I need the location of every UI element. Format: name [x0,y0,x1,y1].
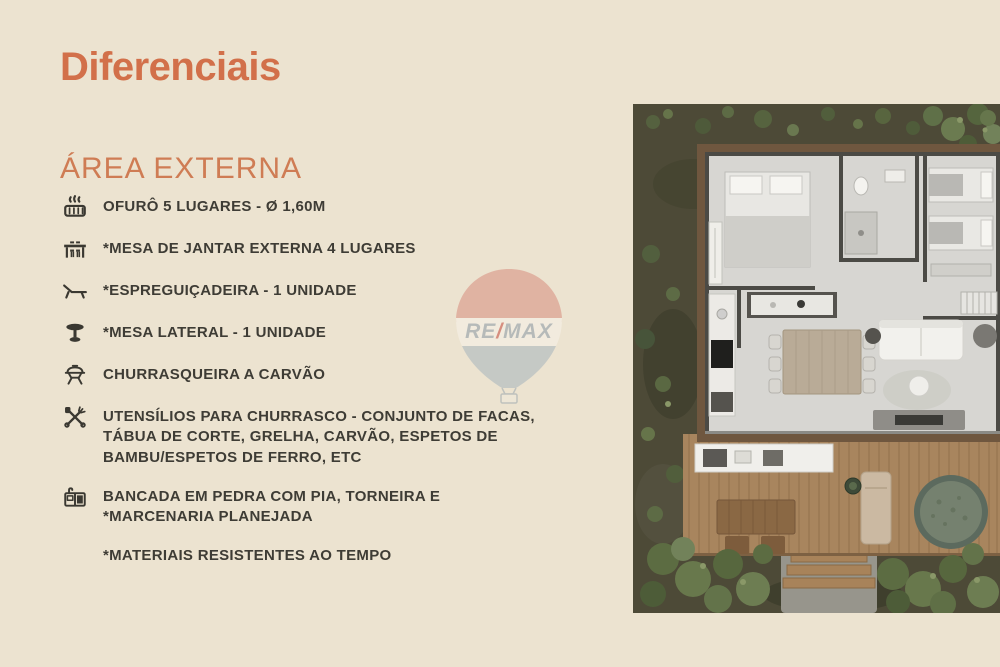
feature-item-churrasqueira: CHURRASQUEIRA A CARVÃO [60,365,600,388]
feature-text: *MESA LATERAL - 1 UNIDADE [103,323,326,343]
presentation-slide: RE/MAX Diferenciais ÁREA EXTERNA OFURÔ 5… [0,0,1000,667]
feature-text: UTENSÍLIOS PARA CHURRASCO - CONJUNTO DE … [103,407,578,468]
charcoal-grill-icon [60,362,90,388]
feature-text: CHURRASQUEIRA A CARVÃO [103,365,325,385]
feature-text: BANCADA EM PEDRA COM PIA, TORNEIRA E *MA… [103,487,503,528]
floor-plan-image [633,104,1000,613]
side-table-icon [60,320,90,346]
feature-text: *MATERIAIS RESISTENTES AO TEMPO [103,546,392,566]
feature-text: *MESA DE JANTAR EXTERNA 4 LUGARES [103,239,416,259]
feature-text: *ESPREGUIÇADEIRA - 1 UNIDADE [103,281,357,301]
feature-item-bancada: BANCADA EM PEDRA COM PIA, TORNEIRA E *MA… [60,487,600,528]
lounge-chair-icon [60,278,90,304]
stone-counter-sink-icon [60,484,90,510]
feature-item-mesa-lateral: *MESA LATERAL - 1 UNIDADE [60,323,600,346]
page-title: Diferenciais [60,45,281,90]
feature-item-utensilios: UTENSÍLIOS PARA CHURRASCO - CONJUNTO DE … [60,407,600,468]
feature-list: OFURÔ 5 LUGARES - Ø 1,60M *MESA DE JANTA… [60,197,600,567]
bbq-utensils-icon [60,404,90,430]
hot-tub-icon [60,194,90,220]
feature-text: OFURÔ 5 LUGARES - Ø 1,60M [103,197,326,217]
feature-item-mesa-jantar: *MESA DE JANTAR EXTERNA 4 LUGARES [60,239,600,262]
feature-item-materiais: *MATERIAIS RESISTENTES AO TEMPO [60,546,600,566]
outdoor-dining-table-icon [60,236,90,262]
section-title: ÁREA EXTERNA [60,152,302,186]
feature-item-espreguicadeira: *ESPREGUIÇADEIRA - 1 UNIDADE [60,281,600,304]
feature-item-ofuro: OFURÔ 5 LUGARES - Ø 1,60M [60,197,600,220]
